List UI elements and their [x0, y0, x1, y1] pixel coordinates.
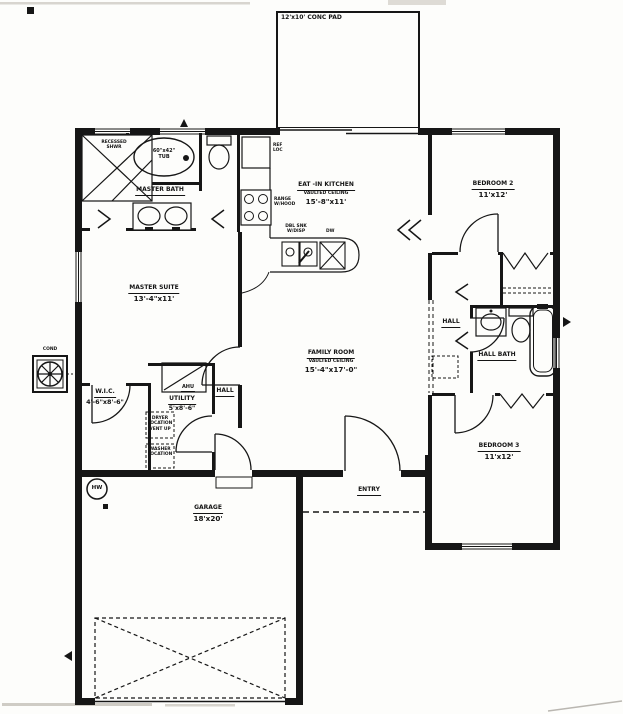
attic-access	[432, 356, 458, 378]
refrigerator	[242, 137, 270, 168]
front-entry-door-arc	[345, 416, 400, 471]
bedroom3-door-arc	[455, 395, 493, 433]
bedroom2-door-arc	[460, 214, 498, 252]
hall-bath-label: HALL BATH	[477, 351, 516, 361]
bedroom2-label: BEDROOM 2 11'x12'	[472, 180, 515, 199]
kitchen-label: EAT -IN KITCHEN VAULTED CEILING 15'-8"x1…	[297, 181, 355, 206]
ahu-label: AHU	[181, 384, 195, 392]
range	[241, 190, 271, 225]
dishwasher-label: DW	[326, 229, 335, 234]
garage-step	[216, 477, 252, 488]
master-suite-label: MASTER SUITE 13'-4"x11'	[128, 284, 179, 303]
closet-bifold-doors	[500, 253, 548, 408]
hall-cased-opening-dashed	[429, 300, 433, 393]
hall-left-label: HALL	[215, 387, 234, 397]
garage-entry-door-arc	[215, 434, 251, 470]
hall-bath-door-arc	[470, 318, 504, 352]
hall-right-label: HALL	[441, 318, 460, 328]
tub-label: 60"x42" TUB	[153, 148, 175, 161]
utility-door-arc	[176, 416, 212, 452]
double-vanity	[133, 203, 191, 230]
closet-shelves	[503, 288, 553, 293]
garage-label: GARAGE 18'x20'	[193, 504, 223, 523]
master-suite-door-arc	[202, 347, 240, 385]
recessed-shower-label: RECESSED SHWR	[101, 140, 126, 151]
ref-loc-label: REF LOC	[273, 143, 283, 154]
condenser-unit	[33, 356, 75, 392]
sliding-glass-door	[280, 128, 418, 135]
conc-pad-label: 12'x10' CONC PAD	[281, 14, 342, 22]
floor-plan: 12'x10' CONC PAD RECESSED SHWR 60"x42" T…	[0, 0, 623, 714]
master-toilet	[207, 136, 231, 169]
family-room-label: FAMILY ROOM VAULTED CEILING 15'-4"x17'-0…	[305, 349, 358, 374]
concrete-pad-outline	[277, 12, 419, 128]
water-heater-symbol	[87, 479, 108, 509]
hall-bath-tub	[530, 304, 556, 376]
range-label: RANGE W/HOOD	[274, 197, 295, 208]
wic-label: W.I.C. 4'-6"x8'-6"	[86, 388, 124, 406]
condenser-label: COND	[43, 347, 57, 352]
entry-label: ENTRY	[357, 486, 381, 496]
washer-label: WASHER LOCATION	[148, 447, 173, 458]
dryer-label: DRYER LOCATION VENT UP	[148, 416, 173, 432]
master-bath-label: MASTER BATH	[135, 186, 185, 196]
dbl-sink-label: DBL SNK W/DISP	[285, 224, 307, 235]
bedroom3-label: BEDROOM 3 11'x12'	[478, 442, 521, 461]
utility-label: UTILITY 5'x8'-6"	[168, 395, 196, 413]
water-heater-label: HW	[92, 485, 103, 492]
garage-door-panel	[95, 618, 285, 698]
